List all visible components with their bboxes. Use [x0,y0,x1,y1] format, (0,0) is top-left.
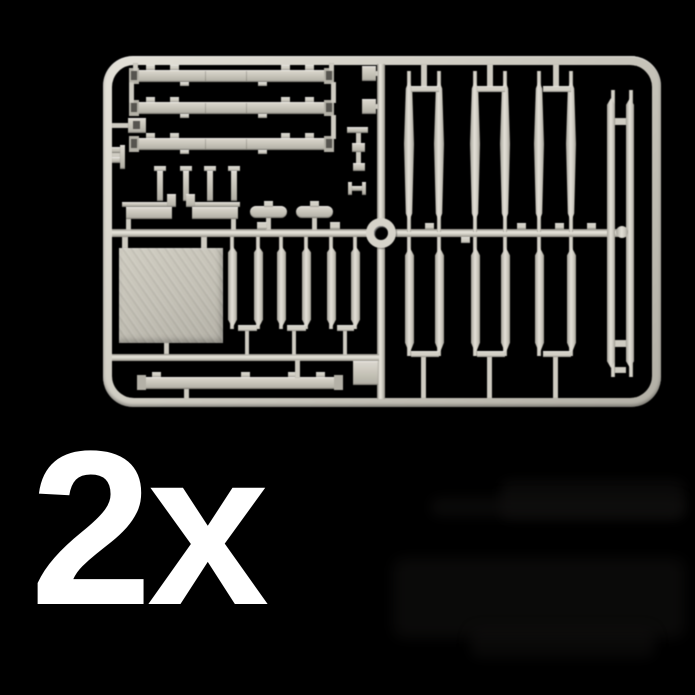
rail-tab [555,223,564,229]
rod-part [470,80,480,222]
quantity-label: 2x [30,418,264,638]
beam-tab [258,82,267,86]
part-notch [133,121,140,129]
beam-tab [152,372,161,377]
bracket-prong [207,171,213,201]
connector-stem [615,118,626,125]
rod-part [302,246,311,326]
small-part [112,147,120,153]
connector-stem [553,64,559,88]
connector-stem [331,115,336,139]
rod-part [277,246,286,326]
connector-stem [375,104,378,109]
beam-tab [146,133,155,138]
rail-tab [587,223,596,229]
chassis-beam [132,138,332,150]
rod-part [500,80,510,222]
connector-stem [122,237,128,248]
sprue-node [616,226,628,238]
beam-tab [264,201,273,207]
beam-end-cap [334,375,343,390]
connector-stem [129,82,134,103]
beam-seam [205,103,206,113]
beam-end-notch [131,71,137,80]
leaf-spring-part [296,206,333,218]
beam-seam [246,71,247,81]
product-photo: 2x [0,0,695,695]
leaf-spring-part [250,206,287,218]
rod-part [471,247,480,351]
connector-stem [487,64,493,88]
rail-tab [330,222,340,229]
bracket-prong [231,171,237,201]
beam-tab [281,133,290,138]
beam-end-notch [326,139,332,148]
connector-stem [292,331,296,355]
hanger-bar [477,86,505,92]
bracket-prong [157,171,163,201]
small-part [362,99,376,114]
beam-end-notch [131,103,137,112]
rod-foot [287,325,306,331]
rod-part [327,246,336,326]
rod-part [535,247,544,351]
connector-stem [112,123,128,128]
bracket-part [186,194,195,207]
beam-tab [241,372,250,377]
connector-stem [312,218,317,230]
beam-tab [146,65,155,70]
connector-stem [356,152,361,163]
rod-part [228,246,237,326]
beam-seam [205,71,206,81]
rod-part [351,246,360,326]
bracket-part [192,207,238,219]
connector-stem [201,237,207,248]
rod-part [501,247,510,351]
beam-tab [305,65,314,70]
connector-stem [331,82,336,103]
rail-tab [517,223,526,229]
beam-end-notch [326,103,332,112]
beam-end-notch [131,139,137,148]
rod-part [254,246,263,326]
connector-stem [231,219,236,230]
beam-tab [316,372,325,377]
beam-seam [246,103,247,113]
panel-texture [119,248,223,343]
beam-tab [305,133,314,138]
hanger-bar [411,86,439,92]
small-part [352,143,365,152]
beam-seam [205,139,206,149]
connector-stem [245,331,249,355]
beam-tab [170,133,179,138]
rod-part [534,80,544,222]
small-part [362,182,366,195]
beam-tab [146,97,155,102]
rail-tab [425,223,434,229]
connector-stem [615,340,626,347]
sprue-center-ring [366,218,396,248]
connector-stem [329,63,334,71]
beam-tab [258,114,267,118]
beam-end-notch [326,71,332,80]
bracket-part [126,207,172,219]
beam-tab [281,97,290,102]
rod-part [607,98,615,368]
rod-part [435,247,444,351]
hanger-bar [543,86,571,92]
beam-tab [258,150,267,154]
connector-stem [133,63,138,71]
connector-stem [421,64,427,88]
connector-stem [164,343,169,354]
connector-stem [184,389,189,399]
beam-tab [170,65,179,70]
beam-seam [246,139,247,149]
connector-stem [375,71,378,76]
rod-part [405,247,414,351]
rod-part [404,80,414,222]
rod-part [567,247,576,351]
beam-tab [170,97,179,102]
connector-stem [553,357,558,398]
small-part [112,157,120,163]
small-part [352,186,362,191]
rail-tab [257,222,267,229]
connector-stem [356,133,361,143]
beam-tab [310,201,319,207]
rod-part [566,80,576,222]
sprue-sub-rail [112,354,379,361]
cross-member-beam [140,377,340,389]
connector-stem [615,367,626,373]
chassis-beam [132,70,332,82]
chassis-beam [132,102,332,114]
beam-tab [180,150,189,154]
rail-tab [461,237,470,243]
connector-stem [295,360,300,378]
connector-stem [126,219,131,230]
small-part [353,163,365,171]
beam-tab [180,114,189,118]
beam-tab [281,65,290,70]
beam-tab [305,97,314,102]
rod-part [434,80,444,222]
small-part [120,145,125,169]
beam-tab [180,82,189,86]
beam-end-cap [137,375,146,390]
connector-stem [421,357,426,398]
connector-stem [343,331,347,355]
bracket-part [167,194,176,207]
connector-stem [487,357,492,398]
small-part [362,66,376,81]
small-part [353,361,378,385]
